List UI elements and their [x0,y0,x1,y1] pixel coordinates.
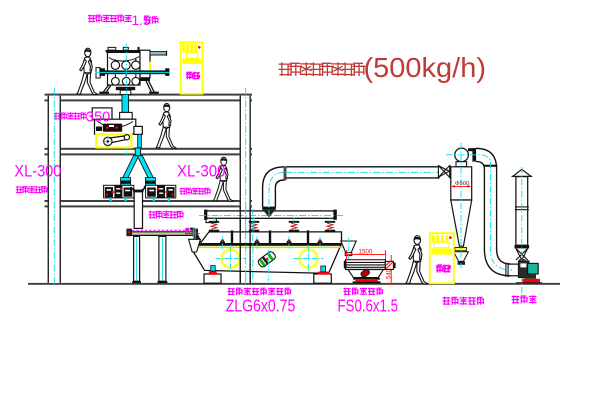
svg-text:Φ500: Φ500 [455,181,469,187]
svg-text:XL-300: XL-300 [177,162,226,181]
svg-text:FS0.6x1.5: FS0.6x1.5 [338,295,399,315]
svg-text:(500kg/h): (500kg/h) [364,52,487,83]
svg-text:1500: 1500 [359,249,373,256]
svg-text:ZLG6x0.75: ZLG6x0.75 [226,295,296,315]
svg-text:350: 350 [86,109,110,125]
svg-text:1.5: 1.5 [132,13,151,28]
svg-text:XL-300: XL-300 [14,162,61,181]
